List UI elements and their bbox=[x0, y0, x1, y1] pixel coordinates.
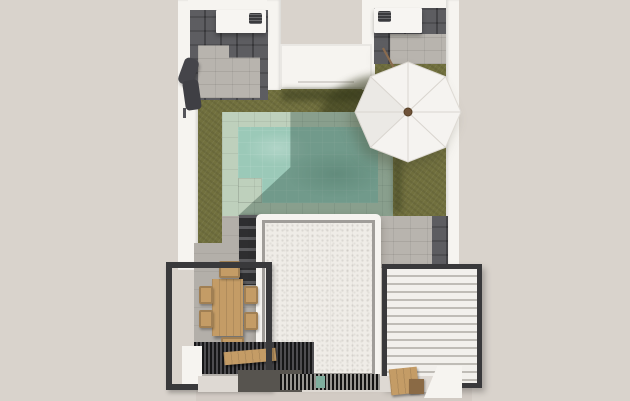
kitchen-counter-left bbox=[216, 10, 266, 33]
bbq-grill-right bbox=[378, 11, 391, 22]
lounge-chair bbox=[179, 56, 207, 118]
entrance-grate bbox=[280, 374, 380, 390]
umbrella-hub bbox=[404, 108, 412, 116]
tiles-dark-strip-right bbox=[432, 216, 448, 268]
lounge-chair-seat bbox=[182, 79, 202, 111]
grate-accent bbox=[316, 376, 325, 388]
bbq-grill-left bbox=[249, 13, 262, 24]
louvered-pergola-slats bbox=[387, 269, 477, 383]
floor-plan-render bbox=[0, 0, 630, 401]
umbrella bbox=[352, 40, 464, 170]
wood-crate-bottom-right bbox=[409, 379, 424, 394]
lounge-chair-leg bbox=[183, 108, 186, 118]
kitchen-counter-right bbox=[374, 8, 422, 33]
wing-wall-left-inner bbox=[267, 0, 281, 90]
